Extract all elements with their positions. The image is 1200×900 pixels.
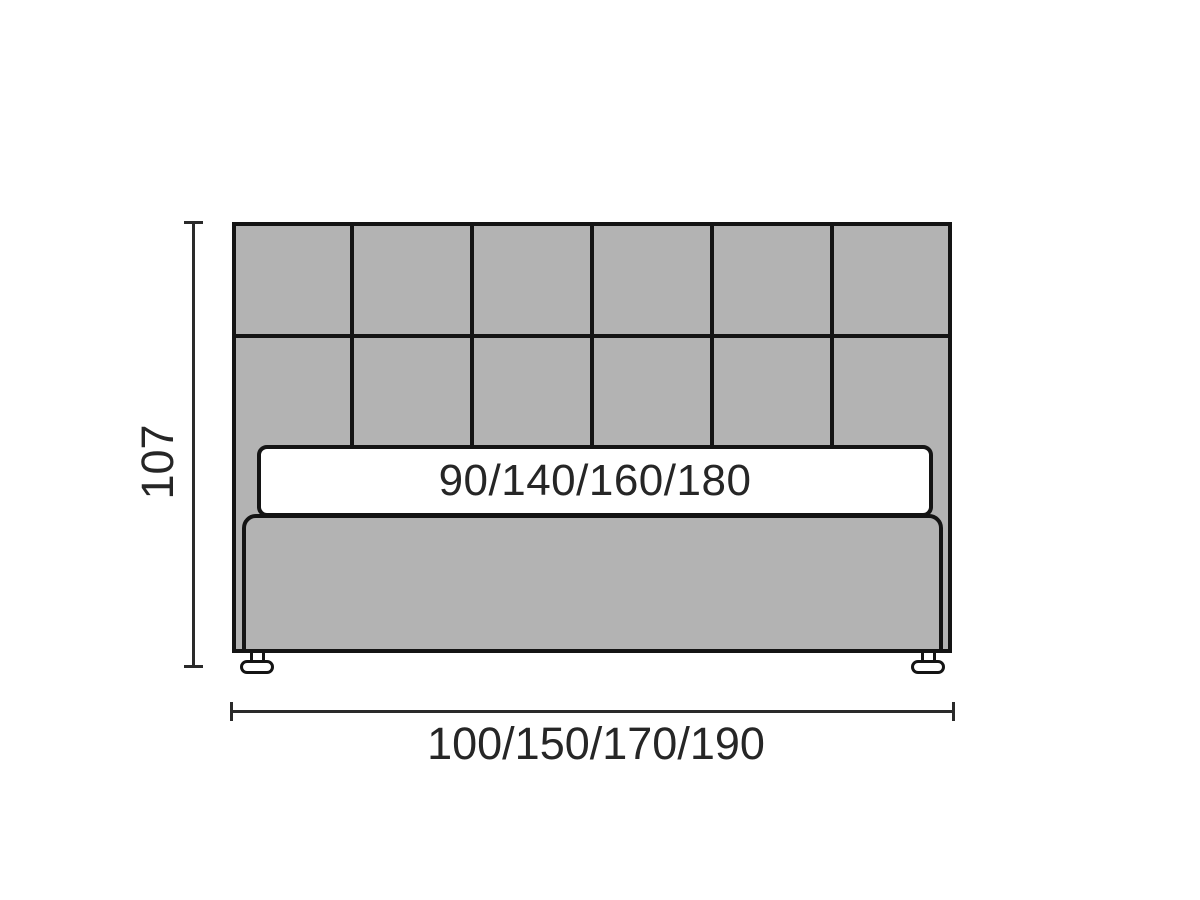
right-foot-glide [911, 660, 945, 674]
width-dimension-tick-left [230, 702, 233, 721]
bed-dimension-diagram: 90/140/160/180 107 100/150/170/190 [0, 0, 1200, 900]
width-dimension-label: 100/150/170/190 [427, 718, 765, 770]
height-dimension-tick-bottom [184, 665, 203, 668]
width-dimension-line [231, 710, 955, 713]
headboard-tufting-grid [232, 222, 952, 450]
width-dimension-tick-right [952, 702, 955, 721]
height-dimension-label: 107 [132, 424, 184, 499]
left-foot-glide [240, 660, 274, 674]
tuft-seam-horizontal [232, 334, 952, 338]
mattress-size-label: 90/140/160/180 [439, 456, 752, 506]
height-dimension-tick-top [184, 221, 203, 224]
mattress: 90/140/160/180 [257, 445, 933, 517]
height-dimension-line [192, 222, 195, 667]
bed-base [242, 514, 943, 653]
